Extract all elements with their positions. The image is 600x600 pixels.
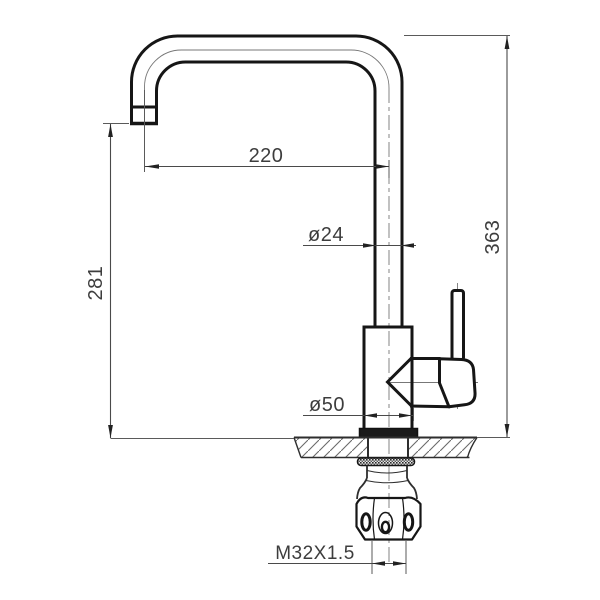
spout-outer-edge [132, 36, 403, 327]
dim-tube-diameter: ø24 [303, 224, 416, 248]
spout-and-riser [130, 36, 402, 327]
faucet-technical-drawing-page: 220 ø24 363 281 [0, 0, 600, 600]
handle-assembly [440, 291, 476, 407]
valve-bottom-shelf [410, 406, 450, 407]
nut-lobe-left [373, 498, 375, 540]
dim-mounting-thread-label: M32X1.5 [275, 543, 355, 564]
dim-outlet-height: 281 [85, 124, 294, 439]
countertop [294, 438, 477, 459]
dim-base-diameter-label: ø50 [309, 394, 345, 416]
valve-notch [388, 358, 413, 407]
dim-spout-reach-label: 220 [249, 145, 284, 167]
dim-tube-diameter-label: ø24 [308, 224, 344, 246]
nut-slot-right [404, 514, 412, 531]
centerlines [145, 50, 479, 562]
nut-slot-left [362, 514, 370, 531]
base-flange [360, 429, 418, 438]
shank-flare-left [357, 478, 367, 499]
dim-overall-height-label: 363 [482, 220, 504, 255]
lever-rod [452, 291, 464, 361]
shank-flare-right [407, 478, 417, 499]
dim-base-diameter: ø50 [303, 394, 414, 421]
countertop-hatch-left [295, 438, 368, 458]
shank-curve-1 [367, 471, 407, 474]
dim-spout-reach: 220 [145, 90, 390, 178]
shank-curve-2 [366, 481, 408, 483]
rubber-washer [358, 458, 415, 466]
dim-mounting-thread: M32X1.5 [268, 541, 406, 574]
mounting-hardware [357, 458, 421, 540]
handle-housing [440, 359, 476, 407]
dim-outlet-height-label: 281 [85, 266, 107, 301]
nut-hole-center-inner [382, 522, 389, 532]
countertop-hatch-right [408, 438, 477, 458]
spout-inner-edge [157, 62, 376, 327]
faucet-dimension-drawing: 220 ø24 363 281 [0, 0, 600, 600]
dimensions: 220 ø24 363 281 [85, 36, 510, 575]
